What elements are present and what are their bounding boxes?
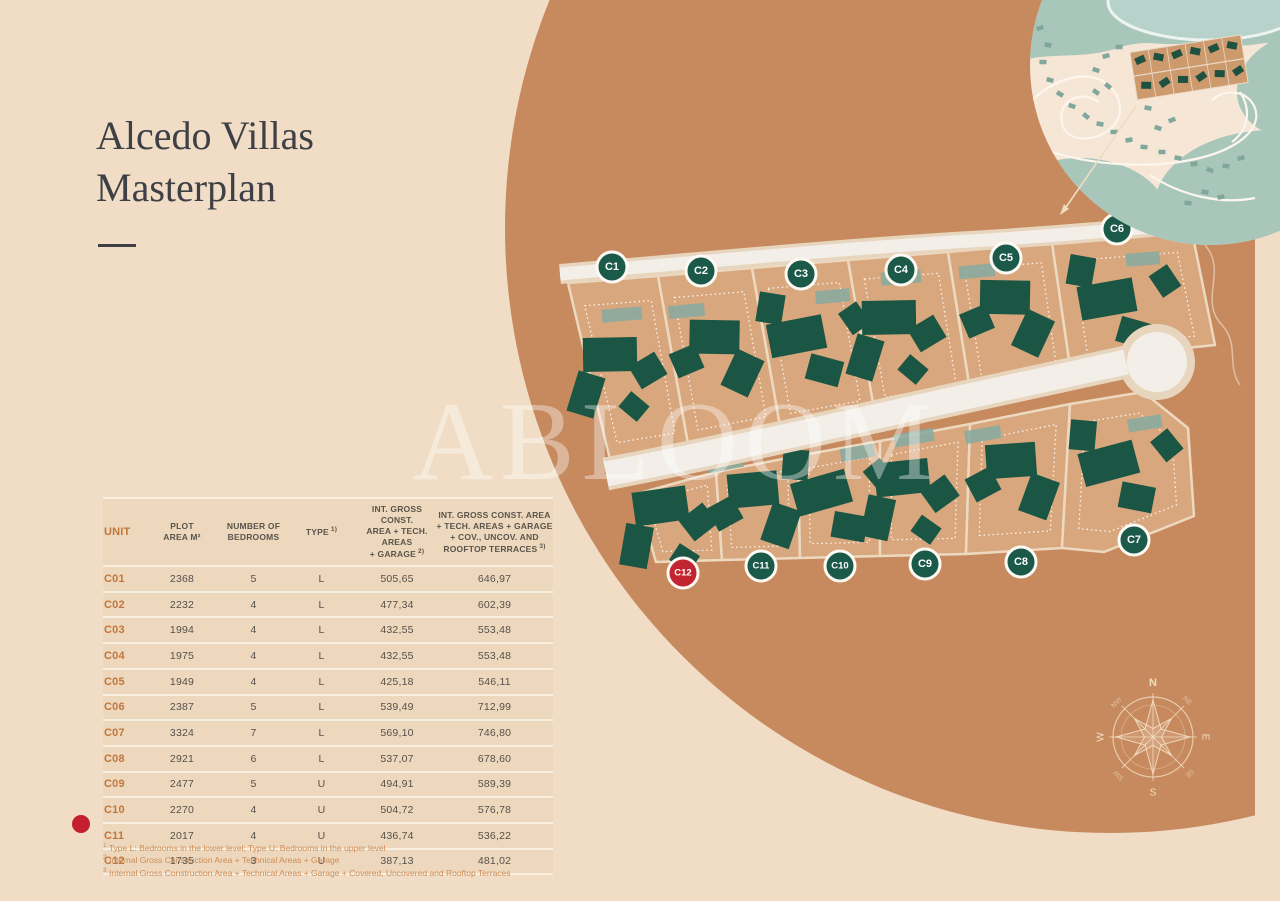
table-row: C0123685L505,65646,97	[103, 567, 553, 593]
table-row: C0623875L539,49712,99	[103, 696, 553, 722]
cell-plot: 1949	[142, 676, 222, 688]
cell-unit: C09	[103, 778, 142, 790]
column-header-line: PLOT	[170, 521, 193, 531]
column-header-line: TYPE	[306, 527, 329, 537]
cell-plot: 3324	[142, 727, 222, 739]
unit-badge-label: C11	[753, 561, 771, 572]
cul-de-sac	[1127, 332, 1187, 392]
cell-area2: 576,78	[436, 804, 553, 816]
cell-area2: 678,60	[436, 753, 553, 765]
cell-plot: 2232	[142, 599, 222, 611]
column-header-4: INT. GROSS CONST.AREA + TECH. AREAS+ GAR…	[358, 504, 436, 560]
column-header-5: INT. GROSS CONST. AREA+ TECH. AREAS + GA…	[436, 510, 553, 555]
column-header-line: BEDROOMS	[228, 532, 280, 542]
column-header-2: NUMBER OFBEDROOMS	[222, 521, 285, 543]
cell-type: L	[285, 599, 358, 611]
cell-unit: C04	[103, 650, 142, 662]
unit-badge-label: C2	[694, 265, 708, 277]
cell-area2: 536,22	[436, 830, 553, 842]
unit-badge-c1: C1	[597, 252, 627, 282]
unit-badge-label: C6	[1110, 223, 1124, 235]
cell-bedrooms: 6	[222, 753, 285, 765]
map-shape	[755, 291, 785, 325]
column-header-line: INT. GROSS CONST.	[372, 504, 422, 525]
table-row: C0924775U494,91589,39	[103, 773, 553, 799]
map-shape	[980, 280, 1031, 315]
cell-bedrooms: 4	[222, 624, 285, 636]
footnote-3: 3 Internal Gross Construction Area + Tec…	[103, 867, 511, 879]
cell-area1: 537,07	[358, 753, 436, 765]
unit-badge-label: C3	[794, 268, 808, 280]
units-table-header: UNITPLOTAREA M²NUMBER OFBEDROOMSTYPE 1)I…	[103, 497, 553, 567]
map-shape	[781, 449, 809, 481]
map-shape	[1126, 251, 1161, 266]
table-row: C1022704U504,72576,78	[103, 798, 553, 824]
table-footnotes: 1 Type L: Bedrooms in the lower level; T…	[103, 842, 511, 879]
cell-unit: C01	[103, 573, 142, 585]
compass-label-s: S	[1150, 788, 1157, 799]
map-shape	[1066, 254, 1097, 288]
cell-bedrooms: 5	[222, 573, 285, 585]
unit-badge-label: C9	[918, 558, 932, 570]
column-header-sup: 3)	[537, 543, 545, 550]
unit-badge-c5: C5	[991, 243, 1021, 273]
cell-area1: 432,55	[358, 624, 436, 636]
highlighted-unit-dot	[72, 815, 90, 833]
column-header-sup: 2)	[416, 548, 424, 555]
cell-area1: 477,34	[358, 599, 436, 611]
unit-badge-label: C7	[1127, 534, 1141, 546]
cell-type: U	[285, 830, 358, 842]
title-dash	[98, 244, 136, 247]
cell-bedrooms: 7	[222, 727, 285, 739]
footnote-1: 1 Type L: Bedrooms in the lower level; T…	[103, 842, 511, 854]
unit-badge-c10: C10	[825, 551, 855, 581]
cell-area1: 436,74	[358, 830, 436, 842]
table-row: C0829216L537,07678,60	[103, 747, 553, 773]
column-header-sup: 1)	[329, 526, 337, 533]
cell-area1: 505,65	[358, 573, 436, 585]
cell-type: U	[285, 804, 358, 816]
cell-unit: C05	[103, 676, 142, 688]
cell-area2: 553,48	[436, 650, 553, 662]
column-header-line: NUMBER OF	[227, 521, 280, 531]
column-header-line: + TECH. AREAS + GARAGE	[436, 521, 552, 531]
cell-type: L	[285, 573, 358, 585]
cell-area2: 646,97	[436, 573, 553, 585]
cell-bedrooms: 5	[222, 701, 285, 713]
masterplan-page: C1C2C3C4C5C6C7C8C9C10C11C12NSWENESESWNW …	[0, 0, 1280, 901]
unit-badge-label: C1	[605, 261, 619, 273]
cell-plot: 1994	[142, 624, 222, 636]
table-row: C0733247L569,10746,80	[103, 721, 553, 747]
column-header-line: + COV., UNCOV. AND	[450, 532, 538, 542]
footnote-sup: 1	[103, 842, 107, 849]
column-header-3: TYPE 1)	[285, 526, 358, 538]
cell-plot: 2270	[142, 804, 222, 816]
unit-badge-c11: C11	[746, 551, 776, 581]
cell-plot: 2477	[142, 778, 222, 790]
table-row: C0419754L432,55553,48	[103, 644, 553, 670]
page-title-line2: Masterplan	[96, 162, 314, 214]
cell-unit: C03	[103, 624, 142, 636]
cell-area2: 602,39	[436, 599, 553, 611]
cell-bedrooms: 4	[222, 599, 285, 611]
cell-unit: C02	[103, 599, 142, 611]
cell-area1: 569,10	[358, 727, 436, 739]
column-header-line: INT. GROSS CONST. AREA	[438, 510, 550, 520]
unit-badge-label: C8	[1014, 556, 1028, 568]
table-row: C0222324L477,34602,39	[103, 593, 553, 619]
column-header-line: AREA M²	[163, 532, 200, 542]
cell-area1: 539,49	[358, 701, 436, 713]
unit-badge-label: C4	[894, 264, 909, 276]
column-header-line: UNIT	[104, 526, 130, 538]
unit-badge-c9: C9	[910, 549, 940, 579]
table-row: C0319944L432,55553,48	[103, 618, 553, 644]
unit-badge-label: C10	[831, 561, 848, 572]
page-title-line1: Alcedo Villas	[96, 110, 314, 162]
unit-badge-c2: C2	[686, 256, 716, 286]
cell-plot: 2387	[142, 701, 222, 713]
unit-badge-c4: C4	[886, 255, 916, 285]
column-header-line: AREA + TECH. AREAS	[366, 526, 427, 547]
page-title: Alcedo Villas Masterplan	[96, 110, 314, 214]
cell-plot: 2921	[142, 753, 222, 765]
column-header-line: + GARAGE	[370, 549, 416, 559]
column-header-0: UNIT	[103, 525, 142, 539]
footnote-2: 2 Internal Gross Construction Area + Tec…	[103, 854, 511, 866]
cell-type: L	[285, 727, 358, 739]
cell-plot: 2017	[142, 830, 222, 842]
column-header-1: PLOTAREA M²	[142, 521, 222, 543]
cell-bedrooms: 5	[222, 778, 285, 790]
unit-badge-label: C12	[674, 568, 691, 579]
cell-type: L	[285, 753, 358, 765]
units-table: UNITPLOTAREA M²NUMBER OFBEDROOMSTYPE 1)I…	[103, 497, 553, 875]
compass-label-w: W	[1096, 732, 1107, 742]
cell-area2: 589,39	[436, 778, 553, 790]
cell-unit: C07	[103, 727, 142, 739]
cell-area1: 504,72	[358, 804, 436, 816]
cell-area1: 432,55	[358, 650, 436, 662]
cell-bedrooms: 4	[222, 676, 285, 688]
cell-area2: 712,99	[436, 701, 553, 713]
unit-badge-c12: C12	[668, 558, 698, 588]
cell-type: L	[285, 701, 358, 713]
units-table-body: C0123685L505,65646,97C0222324L477,34602,…	[103, 567, 553, 875]
cell-bedrooms: 4	[222, 650, 285, 662]
cell-unit: C08	[103, 753, 142, 765]
unit-badge-label: C5	[999, 252, 1013, 264]
unit-badge-c8: C8	[1006, 547, 1036, 577]
cell-bedrooms: 4	[222, 830, 285, 842]
cell-unit: C06	[103, 701, 142, 713]
column-header-line: ROOFTOP TERRACES	[443, 543, 537, 553]
cell-plot: 1975	[142, 650, 222, 662]
unit-badge-c3: C3	[786, 259, 816, 289]
map-shape	[689, 320, 740, 355]
cell-area1: 425,18	[358, 676, 436, 688]
cell-type: L	[285, 676, 358, 688]
cell-area2: 553,48	[436, 624, 553, 636]
footnote-sup: 2	[103, 854, 107, 861]
cell-area2: 746,80	[436, 727, 553, 739]
table-row: C0519494L425,18546,11	[103, 670, 553, 696]
cell-area2: 546,11	[436, 676, 553, 688]
title-block: Alcedo Villas Masterplan	[96, 110, 314, 247]
unit-badge-c7: C7	[1119, 525, 1149, 555]
cell-type: U	[285, 778, 358, 790]
cell-area1: 494,91	[358, 778, 436, 790]
cell-unit: C11	[103, 830, 142, 842]
unit-badge-c6: C6	[1102, 214, 1132, 244]
cell-type: L	[285, 624, 358, 636]
cell-unit: C10	[103, 804, 142, 816]
footnote-sup: 3	[103, 867, 107, 874]
compass-label-e: E	[1200, 734, 1211, 741]
cell-plot: 2368	[142, 573, 222, 585]
map-shape	[1069, 419, 1098, 451]
compass-label-n: N	[1149, 677, 1157, 689]
cell-bedrooms: 4	[222, 804, 285, 816]
cell-type: L	[285, 650, 358, 662]
